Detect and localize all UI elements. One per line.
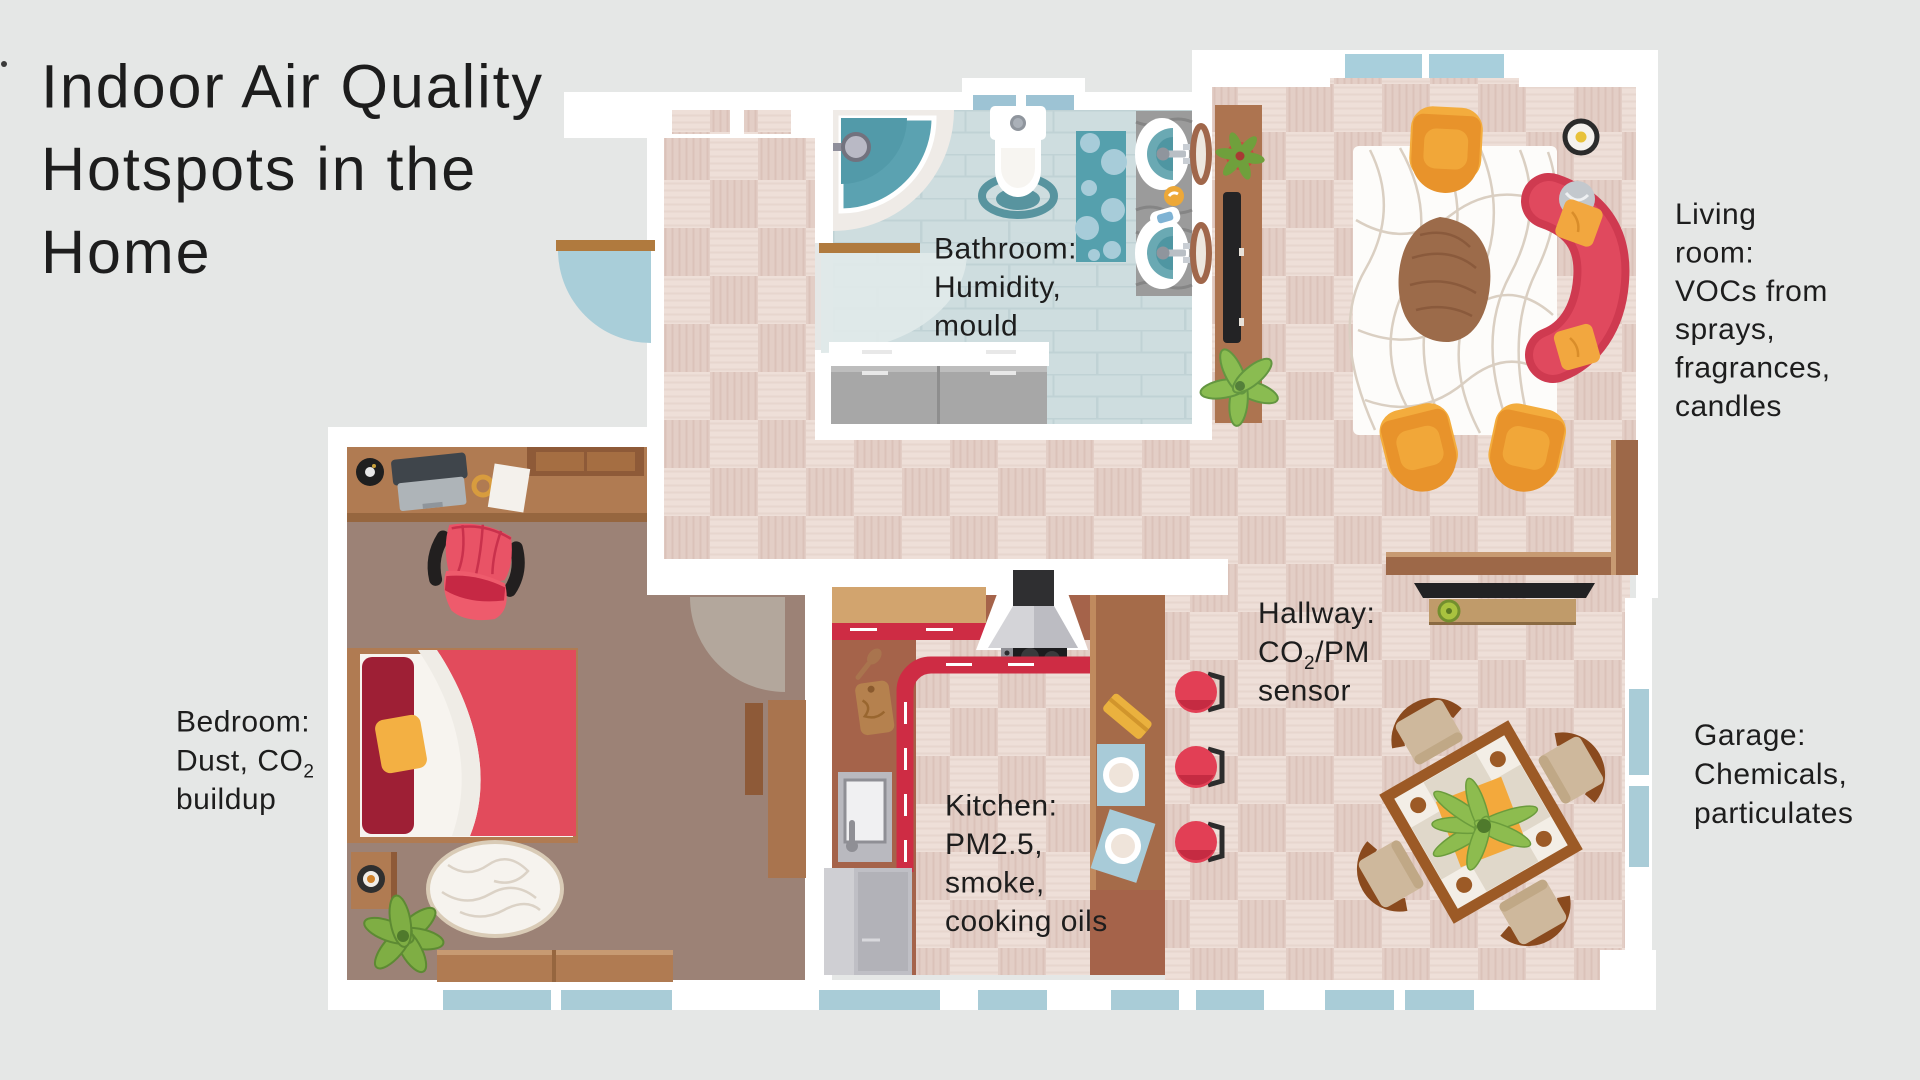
svg-text:Garage:: Garage: (1694, 719, 1806, 752)
svg-text:Kitchen:: Kitchen: (945, 789, 1057, 822)
svg-text:Humidity,: Humidity, (934, 271, 1061, 304)
svg-text:Hotspots in the: Hotspots in the (41, 135, 477, 203)
svg-text:VOCs from: VOCs from (1675, 275, 1828, 308)
svg-text:particulates: particulates (1694, 797, 1853, 830)
svg-text:buildup: buildup (176, 783, 276, 816)
svg-text:Bedroom:: Bedroom: (176, 705, 310, 738)
svg-text:smoke,: smoke, (945, 867, 1045, 900)
svg-text:sensor: sensor (1258, 675, 1351, 708)
svg-text:Dust, CO2: Dust, CO2 (176, 744, 314, 782)
svg-text:mould: mould (934, 310, 1018, 343)
svg-text:fragrances,: fragrances, (1675, 352, 1831, 385)
svg-text:Home: Home (41, 218, 212, 286)
svg-text:Living: Living (1675, 198, 1756, 231)
svg-text:candles: candles (1675, 390, 1782, 423)
svg-text:room:: room: (1675, 236, 1754, 269)
svg-text:cooking oils: cooking oils (945, 905, 1108, 938)
svg-text:Indoor Air Quality: Indoor Air Quality (41, 53, 544, 121)
svg-text:Chemicals,: Chemicals, (1694, 758, 1847, 791)
svg-text:PM2.5,: PM2.5, (945, 828, 1043, 861)
svg-text:sprays,: sprays, (1675, 313, 1775, 346)
svg-text:Bathroom:: Bathroom: (934, 233, 1077, 266)
svg-text:Hallway:: Hallway: (1258, 597, 1375, 630)
